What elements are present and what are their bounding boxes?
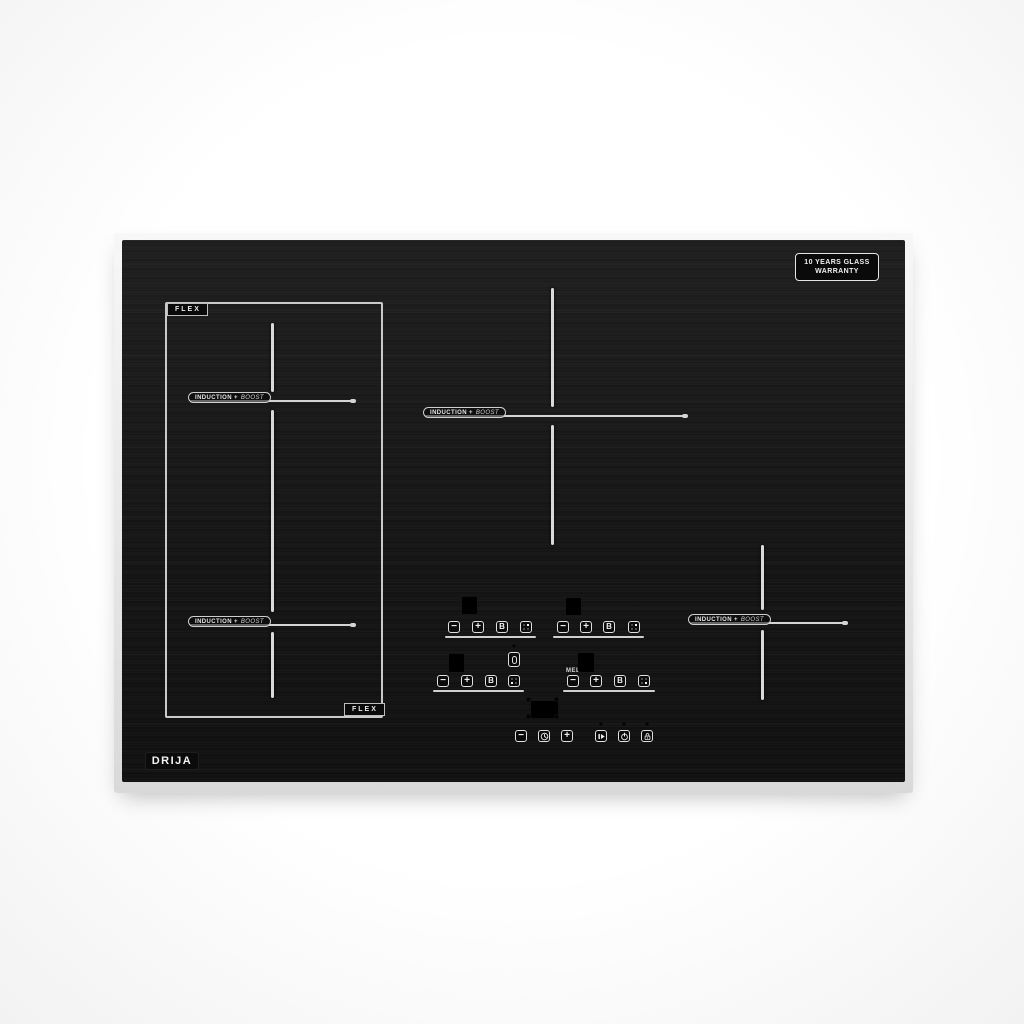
induction-boost-line-left-bottom: INDUCTION +BOOST — [188, 616, 355, 628]
induction-boost-line-right: INDUCTION +BOOST — [688, 614, 847, 626]
pause-button[interactable] — [595, 730, 607, 742]
line-end-cap — [350, 623, 356, 627]
zone-marker-vertical — [271, 632, 274, 698]
boost-button[interactable]: B — [614, 675, 626, 687]
plus-button[interactable]: + — [590, 675, 602, 687]
induction-boost-label: INDUCTION +BOOST — [423, 407, 506, 418]
warranty-line2: WARRANTY — [815, 267, 859, 276]
power-level-dots-icon[interactable] — [638, 675, 650, 687]
induction-boost-label: INDUCTION +BOOST — [688, 614, 771, 625]
boost-button[interactable]: B — [485, 675, 497, 687]
line-end-cap — [842, 621, 848, 625]
lock-button[interactable] — [641, 730, 653, 742]
flex-label-top: FLEX — [167, 303, 208, 316]
power-button[interactable] — [618, 730, 630, 742]
induction-boost-label: INDUCTION +BOOST — [188, 392, 271, 403]
timer-minus-button[interactable]: − — [515, 730, 527, 742]
indicator-dot — [599, 722, 603, 726]
plus-button[interactable]: + — [472, 621, 484, 633]
zone-marker-vertical — [551, 288, 554, 407]
control-group-underline — [445, 636, 536, 638]
indicator-dot — [622, 722, 626, 726]
power-level-dots-icon[interactable] — [628, 621, 640, 633]
flex-zone-outline — [165, 302, 383, 718]
power-display — [449, 654, 464, 672]
indicator-dot — [645, 722, 649, 726]
power-display — [566, 598, 581, 615]
clock-icon — [540, 732, 549, 741]
warranty-line1: 10 YEARS GLASS — [804, 258, 869, 267]
timer-display-dot — [526, 697, 531, 702]
zone-marker-vertical — [271, 323, 274, 392]
plus-button[interactable]: + — [461, 675, 473, 687]
power-level-dots-icon[interactable] — [520, 621, 532, 633]
warranty-badge: 10 YEARS GLASS WARRANTY — [795, 253, 879, 281]
glass-surface: 10 YEARS GLASS WARRANTY FLEX FLEX INDUCT… — [122, 240, 905, 782]
power-display — [578, 653, 594, 672]
timer-display-dot — [554, 697, 559, 702]
zone-marker-vertical — [761, 545, 764, 610]
timer-button[interactable] — [538, 730, 550, 742]
product-photo-background: 10 YEARS GLASS WARRANTY FLEX FLEX INDUCT… — [0, 0, 1024, 1024]
brand-logo: DRIJA — [145, 752, 199, 770]
timer-display-dot — [554, 714, 559, 719]
minus-button[interactable]: − — [437, 675, 449, 687]
boost-button[interactable]: B — [496, 621, 508, 633]
plus-button[interactable]: + — [580, 621, 592, 633]
control-group-underline — [563, 690, 655, 692]
control-group-underline — [553, 636, 644, 638]
minus-button[interactable]: − — [448, 621, 460, 633]
minus-button[interactable]: − — [557, 621, 569, 633]
indicator-dot — [512, 644, 516, 648]
power-level-dots-icon[interactable] — [508, 675, 520, 687]
pause-play-icon — [597, 732, 606, 741]
line-end-cap — [350, 399, 356, 403]
zone-marker-vertical — [551, 425, 554, 545]
bridge-zone-button[interactable] — [508, 652, 520, 667]
induction-boost-label: INDUCTION +BOOST — [188, 616, 271, 627]
bridge-zone-icon — [512, 656, 517, 664]
power-display — [462, 597, 477, 614]
flex-label-bottom: FLEX — [344, 703, 385, 716]
induction-boost-line-left-top: INDUCTION +BOOST — [188, 392, 355, 404]
line-end-cap — [682, 414, 688, 418]
induction-boost-line-center: INDUCTION +BOOST — [423, 407, 687, 419]
control-group-underline — [433, 690, 524, 692]
zone-marker-vertical — [761, 630, 764, 700]
power-icon — [620, 732, 629, 741]
zone-marker-vertical — [271, 410, 274, 612]
minus-button[interactable]: − — [567, 675, 579, 687]
timer-display-dot — [526, 714, 531, 719]
timer-plus-button[interactable]: + — [561, 730, 573, 742]
lock-icon — [643, 732, 652, 741]
boost-button[interactable]: B — [603, 621, 615, 633]
induction-cooktop: 10 YEARS GLASS WARRANTY FLEX FLEX INDUCT… — [114, 233, 913, 793]
